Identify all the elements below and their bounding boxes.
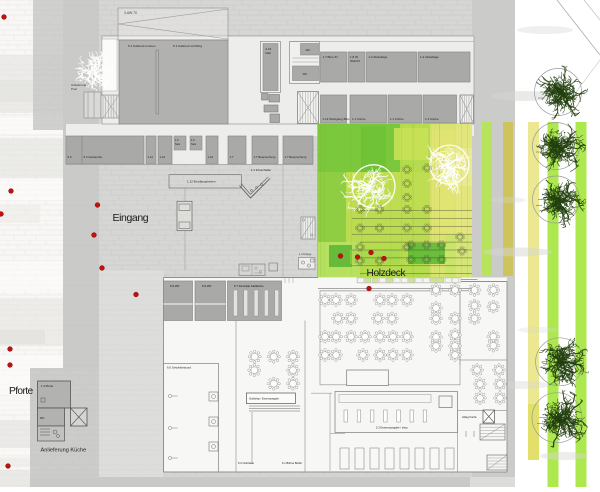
svg-text:Pforte: Pforte [9, 386, 34, 397]
svg-text:5.1 Kabinett trocken: 5.1 Kabinett trocken [128, 44, 156, 48]
svg-text:1.1 Küche: 1.1 Küche [390, 117, 404, 121]
svg-text:1.1 Küche: 1.1 Küche [425, 117, 439, 121]
svg-text:6.9 WC: 6.9 WC [202, 284, 212, 288]
svg-text:1.12 Empfangstresen: 1.12 Empfangstresen [187, 180, 216, 184]
svg-text:Post: Post [71, 87, 77, 91]
svg-text:Eingang: Eingang [113, 212, 149, 224]
svg-text:WC: WC [40, 416, 44, 420]
svg-text:WebXX: WebXX [350, 59, 360, 63]
svg-text:1.7 Besprechung: 1.7 Besprechung [254, 155, 276, 159]
svg-text:WC: WC [303, 72, 308, 76]
svg-text:3.AW 70: 3.AW 70 [124, 11, 137, 15]
svg-text:1.3 Pforte: 1.3 Pforte [41, 384, 54, 388]
svg-text:9.3: 9.3 [68, 155, 72, 159]
svg-text:6.9 WC: 6.9 WC [170, 284, 180, 288]
svg-text:1.4 Anlage: 1.4 Anlage [299, 252, 312, 256]
svg-text:5.7 Zentralle Kaltküche: 5.7 Zentralle Kaltküche [234, 284, 264, 288]
svg-text:1.4 Infoschalter: 1.4 Infoschalter [251, 168, 272, 172]
svg-text:WC: WC [306, 48, 311, 52]
svg-text:Buildshop / Essensausgabe: Buildshop / Essensausgabe [250, 398, 280, 401]
svg-text:6.x Bühne Buffet: 6.x Bühne Buffet [282, 461, 302, 465]
svg-text:Rab: Rab [266, 51, 272, 55]
svg-text:1.7 Büro IN: 1.7 Büro IN [323, 55, 338, 59]
svg-text:1.7 Besprechung: 1.7 Besprechung [285, 155, 307, 159]
svg-text:1.13 Werkgang Büro: 1.13 Werkgang Büro [323, 117, 351, 121]
svg-text:1.1 Küche: 1.1 Küche [352, 117, 366, 121]
svg-text:6.2 Clubhaus: 6.2 Clubhaus [238, 461, 254, 465]
svg-text:1.6: 1.6 [175, 138, 179, 142]
svg-text:1.2 Abstellage: 1.2 Abstellage [420, 55, 439, 59]
svg-text:6.6 Getränkebuord: 6.6 Getränkebuord [167, 366, 191, 370]
svg-text:1.10: 1.10 [208, 155, 214, 159]
svg-text:5.4 Garderobe: 5.4 Garderobe [84, 155, 103, 159]
svg-text:1.6: 1.6 [191, 138, 195, 142]
svg-text:1.7: 1.7 [230, 155, 234, 159]
svg-text:Anlieferung Küche: Anlieferung Küche [41, 448, 87, 454]
svg-text:1.11: 1.11 [148, 155, 154, 159]
svg-text:1.10: 1.10 [160, 155, 166, 159]
svg-text:Sani: Sani [175, 142, 181, 146]
svg-text:Sani: Sani [191, 142, 197, 146]
svg-text:Holzdeck: Holzdeck [367, 268, 407, 279]
svg-text:1.2 Abstellage: 1.2 Abstellage [369, 55, 388, 59]
svg-text:Ablag Küche: Ablag Küche [462, 415, 477, 419]
svg-text:5.1 Kabinett Vorführg: 5.1 Kabinett Vorführg [173, 44, 202, 48]
svg-text:5.3 Essensausgabe / shop: 5.3 Essensausgabe / shop [376, 426, 408, 430]
